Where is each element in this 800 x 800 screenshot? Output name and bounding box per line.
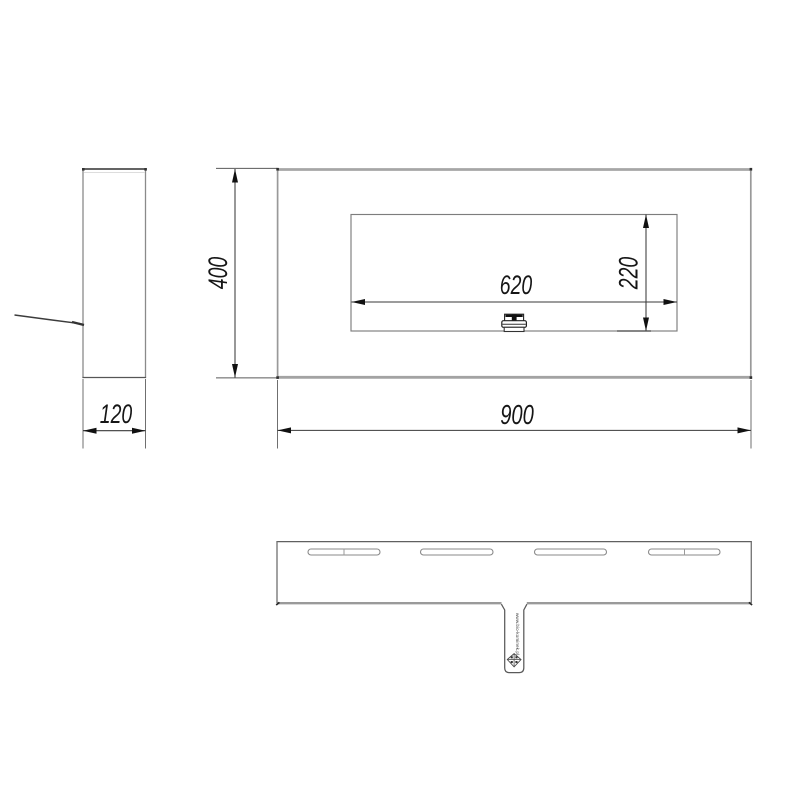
svg-text:400: 400 xyxy=(203,257,233,289)
svg-text:900: 900 xyxy=(500,400,534,431)
svg-text:620: 620 xyxy=(500,270,532,300)
svg-text:www.bio-kominek.pl: www.bio-kominek.pl xyxy=(515,613,520,655)
svg-text:120: 120 xyxy=(100,399,132,429)
svg-text:220: 220 xyxy=(613,257,643,290)
